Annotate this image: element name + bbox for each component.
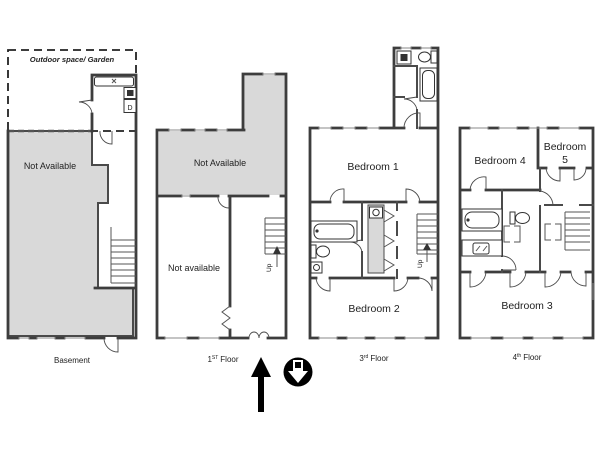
bedroom5-label-line2: 5: [562, 154, 568, 166]
closet-icon: [368, 205, 394, 273]
dishwasher-icon: D: [124, 100, 136, 113]
bedroom4-label: Bedroom 4: [474, 155, 526, 167]
bedroom2-label: Bedroom 2: [348, 303, 400, 315]
sink-icon: [397, 51, 411, 64]
bedroom1-label: Bedroom 1: [347, 161, 399, 173]
entrance-arrow-icon: [251, 357, 271, 412]
third-floor-walls: [310, 48, 438, 338]
outdoor-space-label: Outdoor space/ Garden: [30, 55, 115, 64]
first-floor-up-label: Up: [266, 263, 273, 272]
sink-icon: [311, 262, 322, 273]
fourth-floor-label: 4thFloor: [513, 353, 542, 362]
basement-floor-label: Basement: [54, 356, 91, 365]
view-direction-icon: [284, 358, 313, 387]
first-floor-stairs-icon: Up: [265, 218, 286, 272]
first-floor-not-available-area: [159, 75, 285, 195]
first-floor-lower-label: Not available: [168, 263, 220, 273]
toilet-icon: [510, 212, 530, 224]
bifold-door-icon: [222, 306, 230, 330]
bedroom3-label: Bedroom 3: [501, 300, 553, 312]
bathtub-icon: [462, 209, 502, 231]
closet-shelf-marks: [504, 224, 561, 242]
third-floor-plan: Up Bedroom 1 Bedroom 2 3rdFloor: [310, 48, 438, 363]
appliance-icon: [124, 88, 136, 99]
toilet-icon: [311, 245, 330, 258]
first-floor-door-arcs: [218, 196, 269, 338]
dishwasher-label: D: [127, 105, 132, 112]
floorplan-svg: D Outdoor space/ Garden Not Available Ba…: [0, 0, 600, 450]
bathtub-icon: [311, 221, 357, 242]
basement-stairs-icon: [111, 227, 136, 283]
first-floor-plan: Up Not Available Not available 1STFloor: [157, 74, 313, 412]
first-floor-upper-label: Not Available: [194, 158, 246, 168]
first-floor-label: 1STFloor: [207, 355, 238, 364]
kitchen-counter-icon: [95, 77, 134, 86]
third-floor-stairs-icon: Up: [417, 214, 438, 268]
third-floor-bathroom: [311, 221, 357, 273]
bedroom5-label-line1: Bedroom: [544, 141, 587, 153]
floorplan-image: D Outdoor space/ Garden Not Available Ba…: [0, 0, 600, 450]
fourth-floor-bathroom: [462, 209, 561, 256]
basement-not-available-label: Not Available: [24, 161, 76, 171]
third-floor-label: 3rdFloor: [359, 354, 388, 363]
basement-plan: D Outdoor space/ Garden Not Available Ba…: [8, 50, 136, 365]
vanity-sink-icon: [462, 240, 502, 256]
fourth-floor-stairs-icon: [565, 212, 590, 250]
third-floor-windows: [318, 48, 432, 338]
bathtub-icon: [420, 68, 437, 101]
toilet-icon: [419, 51, 438, 63]
fourth-floor-plan: Bedroom 4 Bedroom 5 Bedroom 3 4thFloor: [460, 128, 593, 362]
third-floor-up-label: Up: [417, 259, 424, 268]
